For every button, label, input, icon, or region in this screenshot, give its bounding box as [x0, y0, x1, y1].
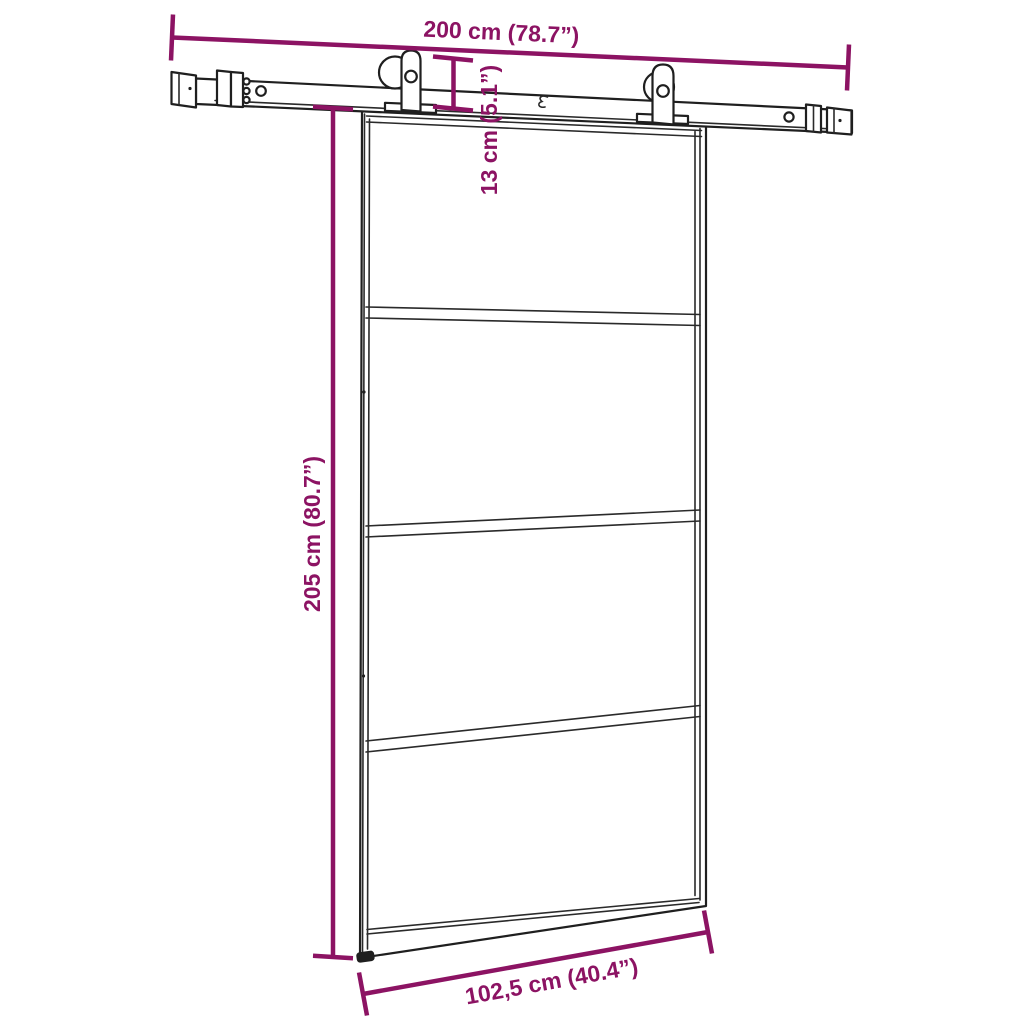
dim-tick: [433, 57, 473, 61]
dimension-track-width: 200 cm (78.7”): [171, 15, 849, 91]
roller-hanger-left: [379, 51, 436, 114]
dim-tick: [171, 15, 173, 61]
hanger-bolt-left: [405, 71, 417, 83]
track-end-cap-left: [172, 72, 197, 108]
dim-tick: [313, 107, 353, 109]
end-cap-dot: [188, 87, 191, 90]
track-width-label: 200 cm (78.7”): [423, 16, 580, 49]
door-outline: [360, 110, 706, 958]
sliding-door-dimension-diagram: 200 cm (78.7”) 13 cm (5.1”) 205 cm (80.7…: [0, 0, 1024, 1024]
dimension-door-height: 205 cm (80.7”): [299, 107, 353, 958]
hardware-height-label: 13 cm (5.1”): [476, 65, 502, 195]
dim-tick: [313, 956, 353, 958]
end-cap-dot: [838, 119, 841, 122]
stile-screw-dot: [362, 674, 365, 677]
door-height-label: 205 cm (80.7”): [299, 456, 325, 612]
track-bracket-right: [806, 105, 821, 133]
stile-screw-dot: [362, 390, 365, 393]
door-panel: [356, 110, 706, 963]
roller-hanger-right: [637, 65, 688, 125]
track-bracket-left: [217, 71, 250, 108]
track-screw-hole-left: [256, 86, 266, 96]
dim-tick: [847, 45, 849, 91]
hanger-bolt-right: [657, 85, 669, 97]
track-screw-hole-right: [784, 112, 793, 121]
floor-guide-foot: [356, 950, 375, 963]
